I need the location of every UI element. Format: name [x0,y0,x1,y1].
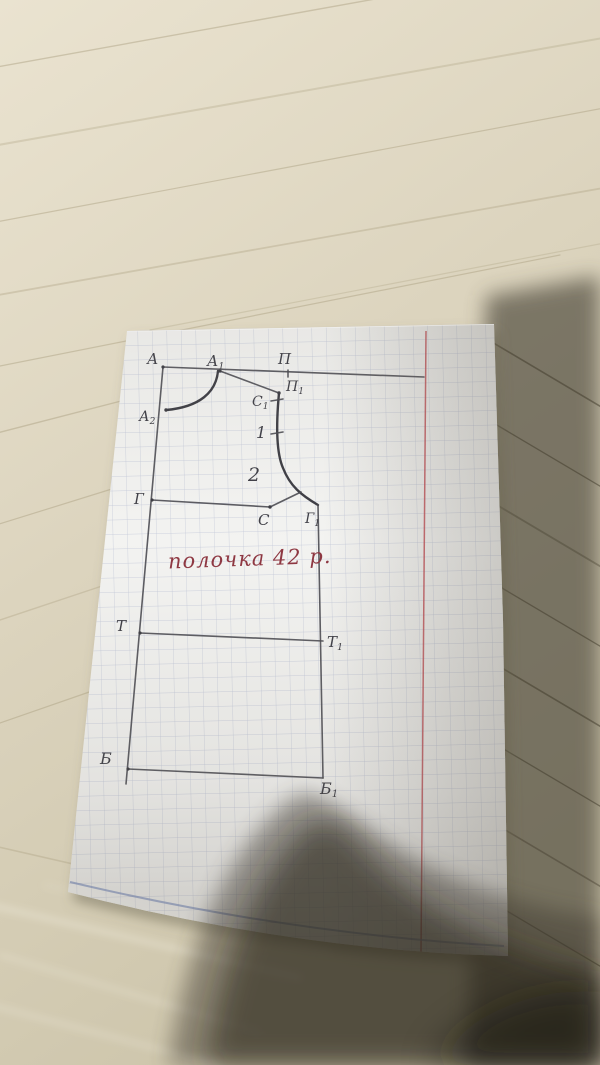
photo-canvas: А А1 П П1 С1 1 2 С А2 Г Г1 Т Т1 Б Б1 пол… [0,0,600,1065]
scene-svg: А А1 П П1 С1 1 2 С А2 Г Г1 Т Т1 Б Б1 пол… [0,0,600,1065]
